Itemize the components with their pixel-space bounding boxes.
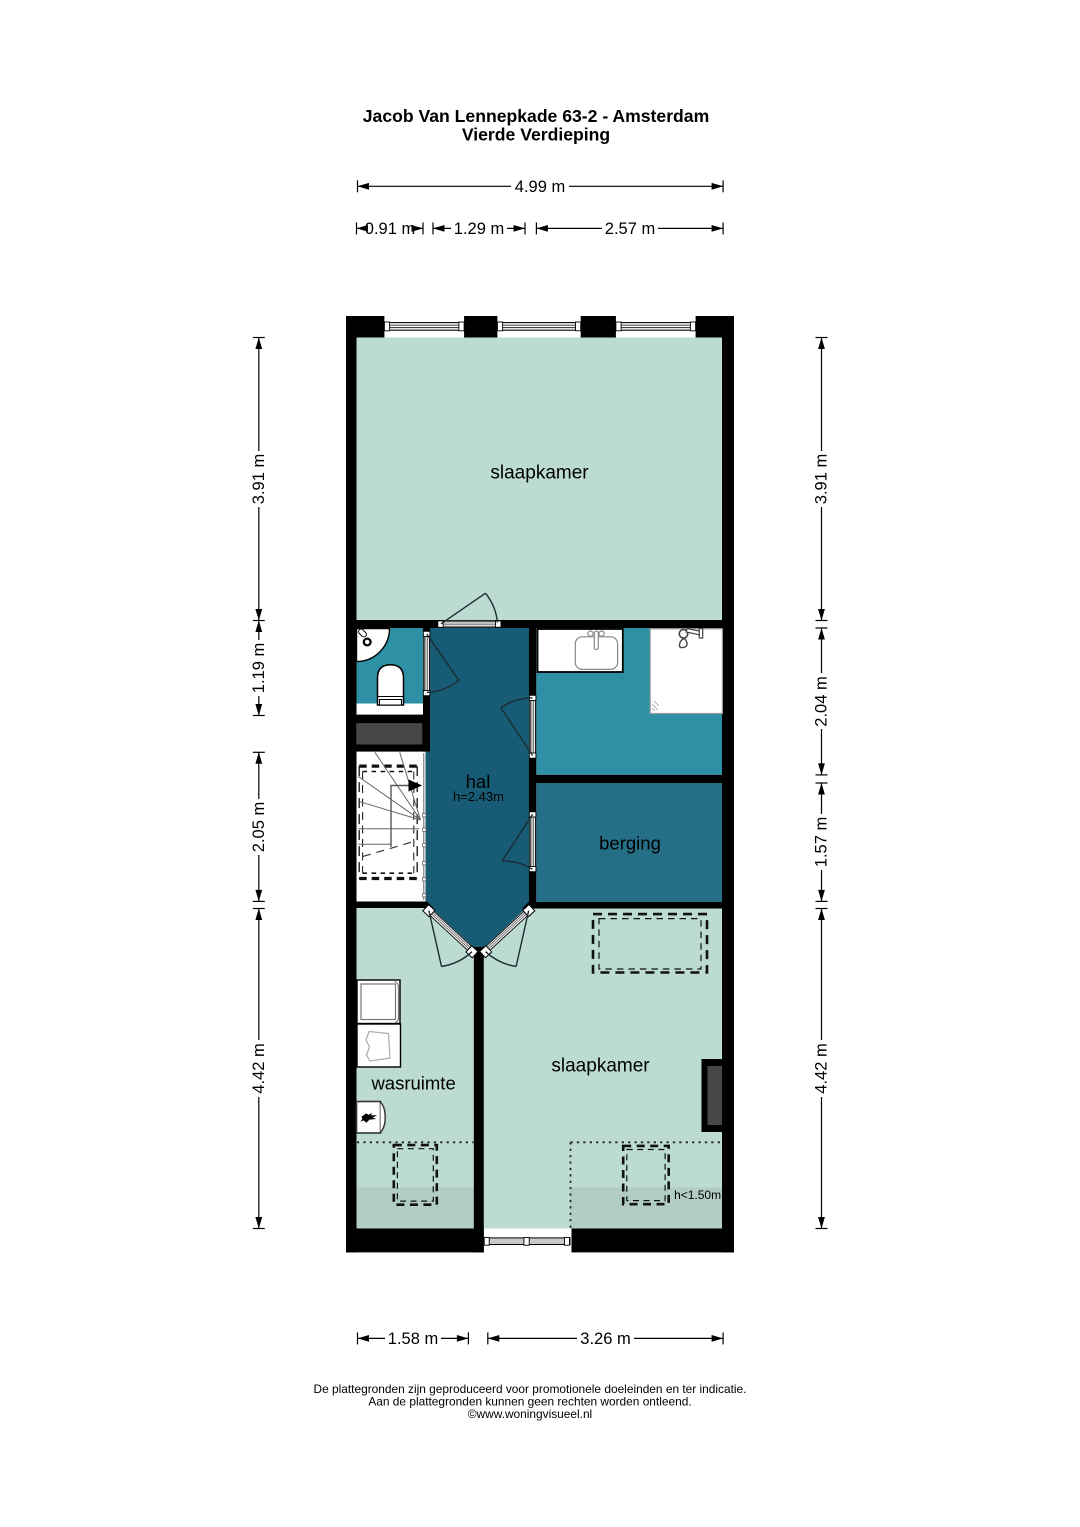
svg-text:4.99 m: 4.99 m — [515, 178, 565, 196]
svg-text:berging: berging — [599, 833, 661, 854]
svg-text:slaapkamer: slaapkamer — [551, 1056, 650, 1077]
svg-text:slaapkamer: slaapkamer — [490, 463, 589, 484]
svg-text:4.42 m: 4.42 m — [813, 1043, 831, 1093]
svg-text:3.91 m: 3.91 m — [250, 454, 268, 504]
svg-text:©www.woningvisueel.nl: ©www.woningvisueel.nl — [468, 1407, 592, 1421]
svg-text:1.29 m: 1.29 m — [454, 220, 504, 238]
svg-text:0.91 m: 0.91 m — [365, 220, 415, 238]
svg-text:1.57 m: 1.57 m — [813, 817, 831, 867]
svg-text:2.05 m: 2.05 m — [250, 802, 268, 852]
svg-text:h<1.50m: h<1.50m — [674, 1188, 721, 1202]
svg-text:4.42 m: 4.42 m — [250, 1043, 268, 1093]
svg-text:1.19 m: 1.19 m — [250, 643, 268, 693]
svg-text:wasruimte: wasruimte — [370, 1073, 455, 1094]
svg-text:1.58 m: 1.58 m — [388, 1330, 438, 1348]
svg-text:3.26 m: 3.26 m — [580, 1330, 630, 1348]
svg-text:2.57 m: 2.57 m — [605, 220, 655, 238]
svg-text:3.91 m: 3.91 m — [813, 454, 831, 504]
svg-text:2.04 m: 2.04 m — [813, 676, 831, 726]
svg-text:Vierde Verdieping: Vierde Verdieping — [462, 125, 610, 145]
svg-text:h=2.43m: h=2.43m — [453, 789, 504, 804]
svg-text:Jacob Van Lennepkade 63-2 - Am: Jacob Van Lennepkade 63-2 - Amsterdam — [363, 106, 709, 126]
